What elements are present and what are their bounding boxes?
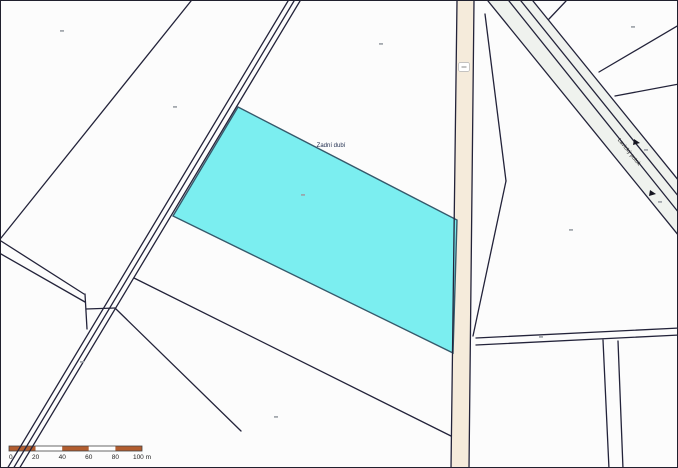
parcel-number-mark <box>80 361 84 363</box>
scale-tick-label: 20 <box>32 454 40 461</box>
scale-tick-label: 80 <box>112 454 120 461</box>
map-canvas[interactable]: 020406080100 mZadní dubíLavický potok <box>1 1 678 468</box>
map-viewport: 020406080100 mZadní dubíLavický potok <box>0 0 678 468</box>
parcel-name-label: Zadní dubí <box>317 143 346 149</box>
parcel-number-mark <box>301 194 305 196</box>
parcel-number-mark <box>379 43 383 45</box>
scale-tick-label: 40 <box>59 454 67 461</box>
scale-tick-label: 60 <box>85 454 93 461</box>
parcel-number-mark <box>658 201 662 203</box>
parcel-number-mark <box>631 26 635 28</box>
parcel-number-mark <box>539 336 543 338</box>
scale-tick-label: 100 m <box>133 454 151 461</box>
parcel-number-mark <box>60 30 64 32</box>
road-number-text <box>462 66 467 68</box>
parcel-number-mark <box>173 106 177 108</box>
parcel-number-mark <box>644 149 648 151</box>
parcel-number-mark <box>569 229 573 231</box>
parcel-number-mark <box>274 416 278 418</box>
